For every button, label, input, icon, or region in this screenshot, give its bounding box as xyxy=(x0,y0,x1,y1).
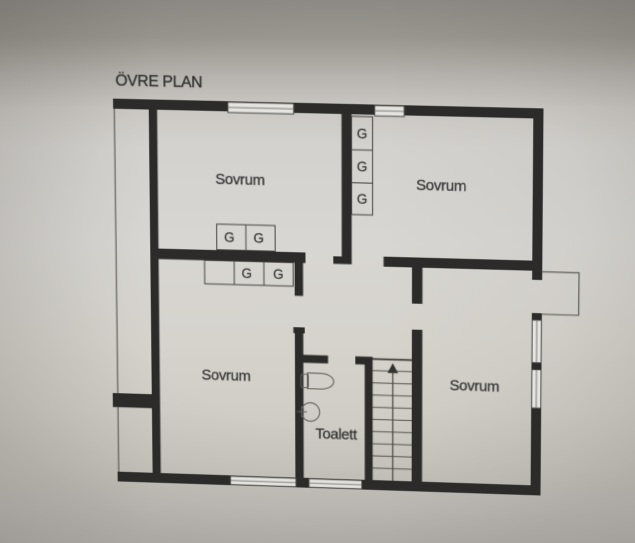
svg-text:G: G xyxy=(253,231,263,246)
svg-text:ÖVRE PLAN: ÖVRE PLAN xyxy=(115,71,202,91)
svg-text:Sovrum: Sovrum xyxy=(450,377,500,395)
svg-text:G: G xyxy=(357,191,367,206)
svg-text:G: G xyxy=(241,266,251,281)
svg-text:Sovrum: Sovrum xyxy=(416,177,466,195)
svg-text:G: G xyxy=(357,159,368,174)
svg-text:G: G xyxy=(224,230,234,245)
svg-text:Sovrum: Sovrum xyxy=(201,367,250,385)
svg-text:G: G xyxy=(273,267,283,282)
svg-text:Sovrum: Sovrum xyxy=(215,171,265,189)
svg-text:G: G xyxy=(357,126,368,141)
svg-text:Toalett: Toalett xyxy=(315,425,358,443)
